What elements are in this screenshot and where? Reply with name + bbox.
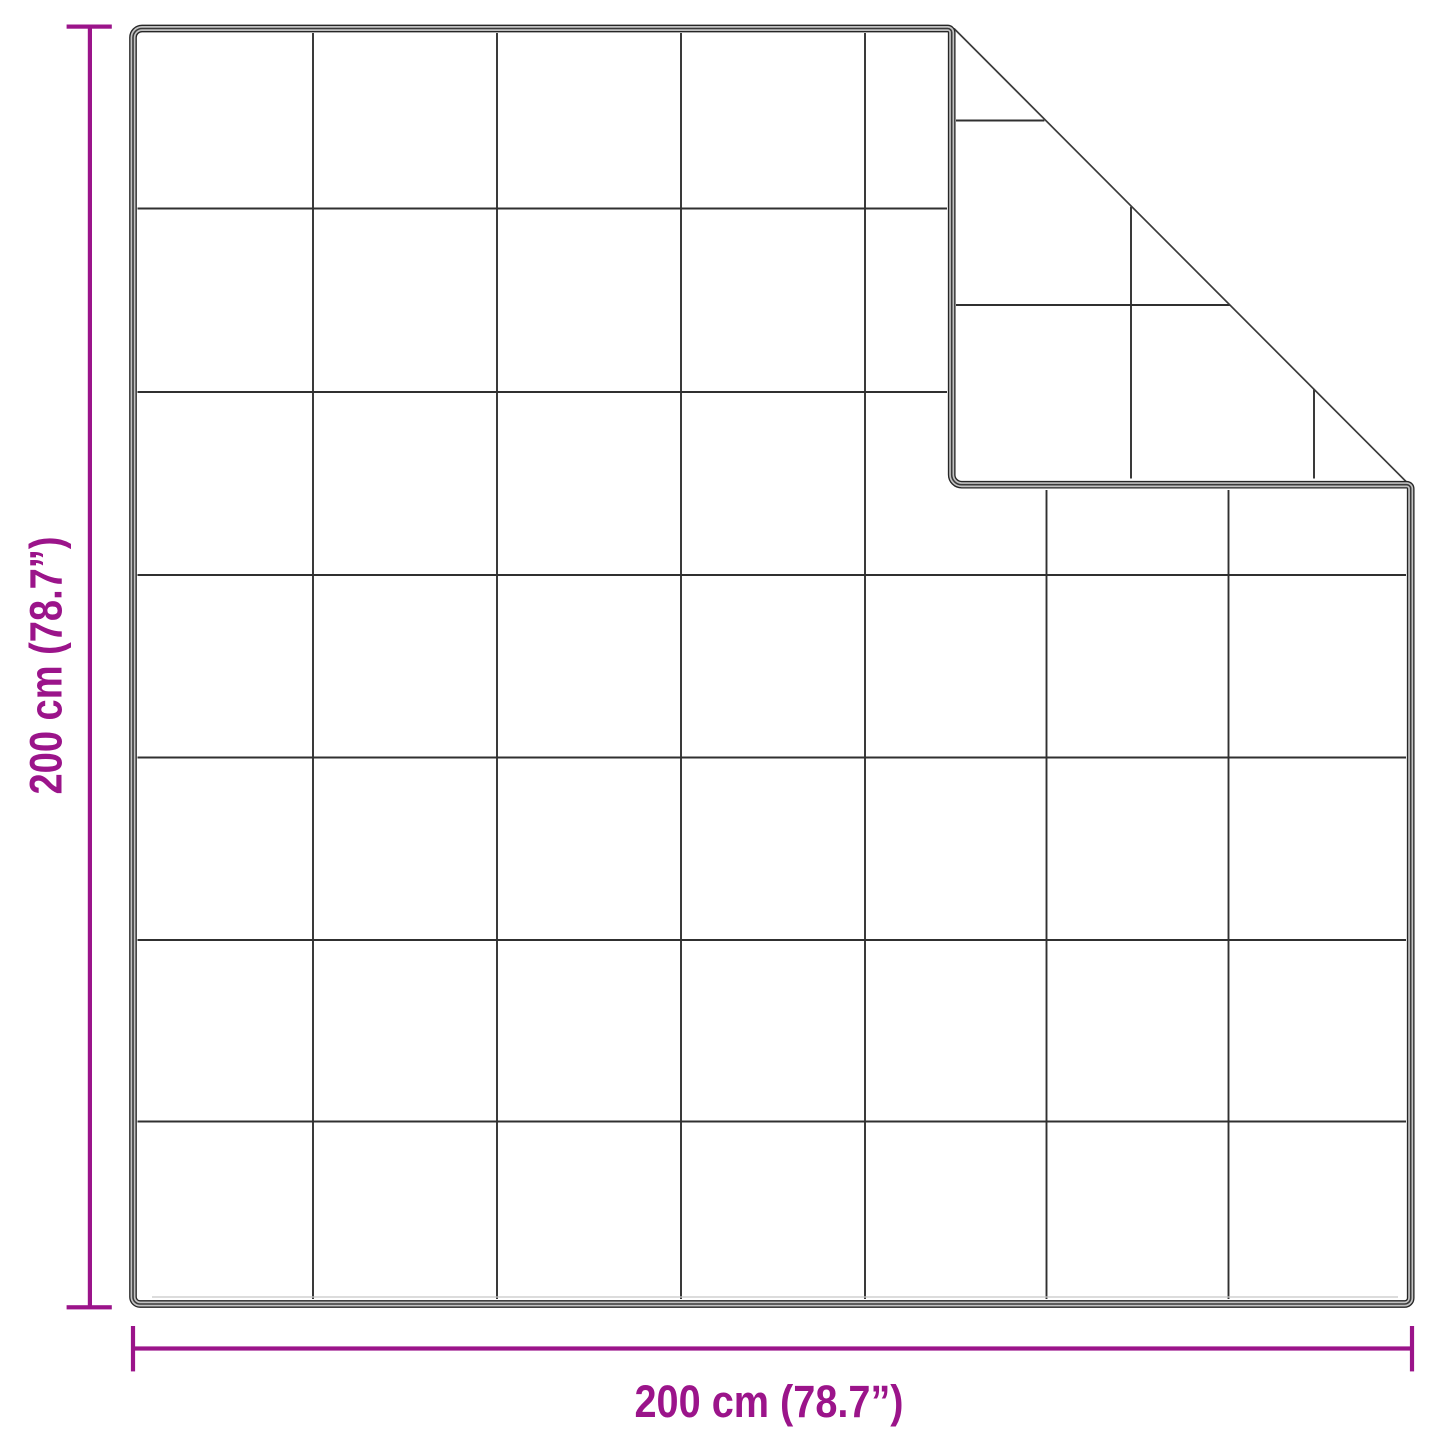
svg-text:200 cm (78.7”): 200 cm (78.7”): [21, 537, 72, 795]
svg-text:200 cm (78.7”): 200 cm (78.7”): [635, 1376, 904, 1427]
